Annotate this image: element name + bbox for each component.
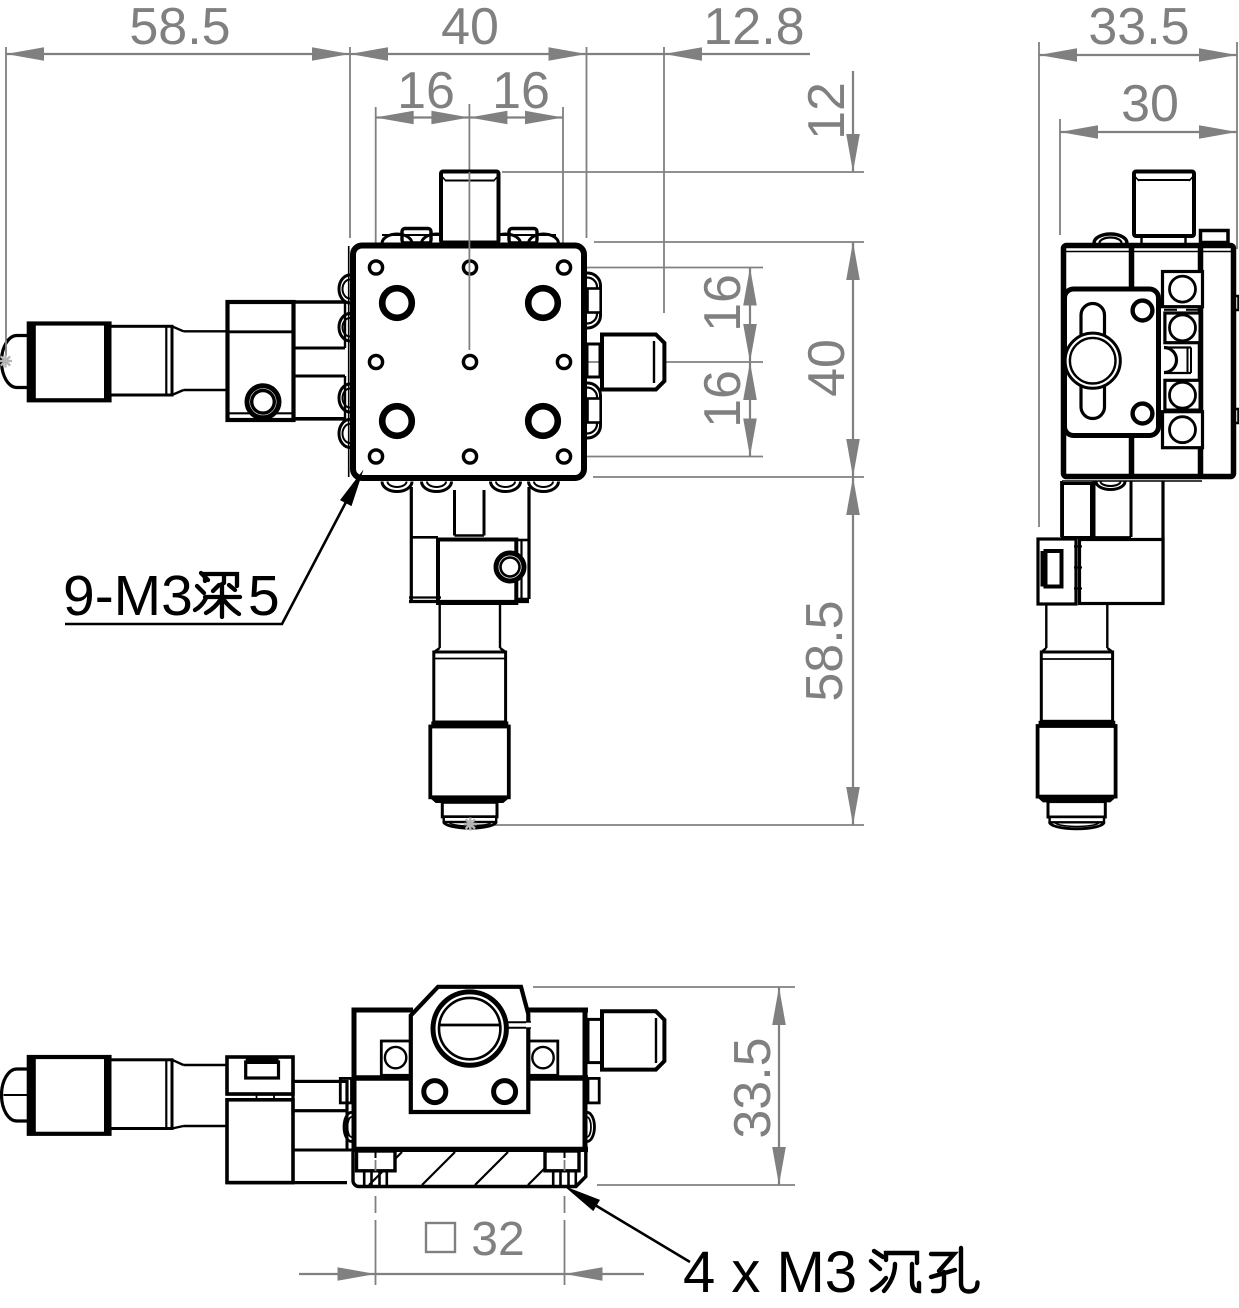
svg-text:58.5: 58.5 [129, 0, 230, 56]
svg-text:40: 40 [441, 0, 499, 56]
svg-text:30: 30 [1121, 75, 1179, 133]
svg-text:16: 16 [397, 62, 455, 120]
svg-text:16: 16 [492, 62, 550, 120]
svg-text:58.5: 58.5 [796, 600, 854, 701]
svg-text:32: 32 [471, 1213, 524, 1266]
svg-text:16: 16 [694, 274, 752, 332]
svg-text:5: 5 [248, 564, 280, 628]
svg-text:4 x M3: 4 x M3 [683, 1240, 857, 1305]
svg-text:9-M3: 9-M3 [63, 564, 193, 628]
svg-text:40: 40 [798, 339, 856, 397]
svg-text:16: 16 [694, 370, 752, 428]
svg-text:12: 12 [798, 82, 856, 140]
svg-text:12.8: 12.8 [703, 0, 804, 56]
svg-text:33.5: 33.5 [724, 1037, 782, 1138]
svg-text:33.5: 33.5 [1088, 0, 1189, 56]
